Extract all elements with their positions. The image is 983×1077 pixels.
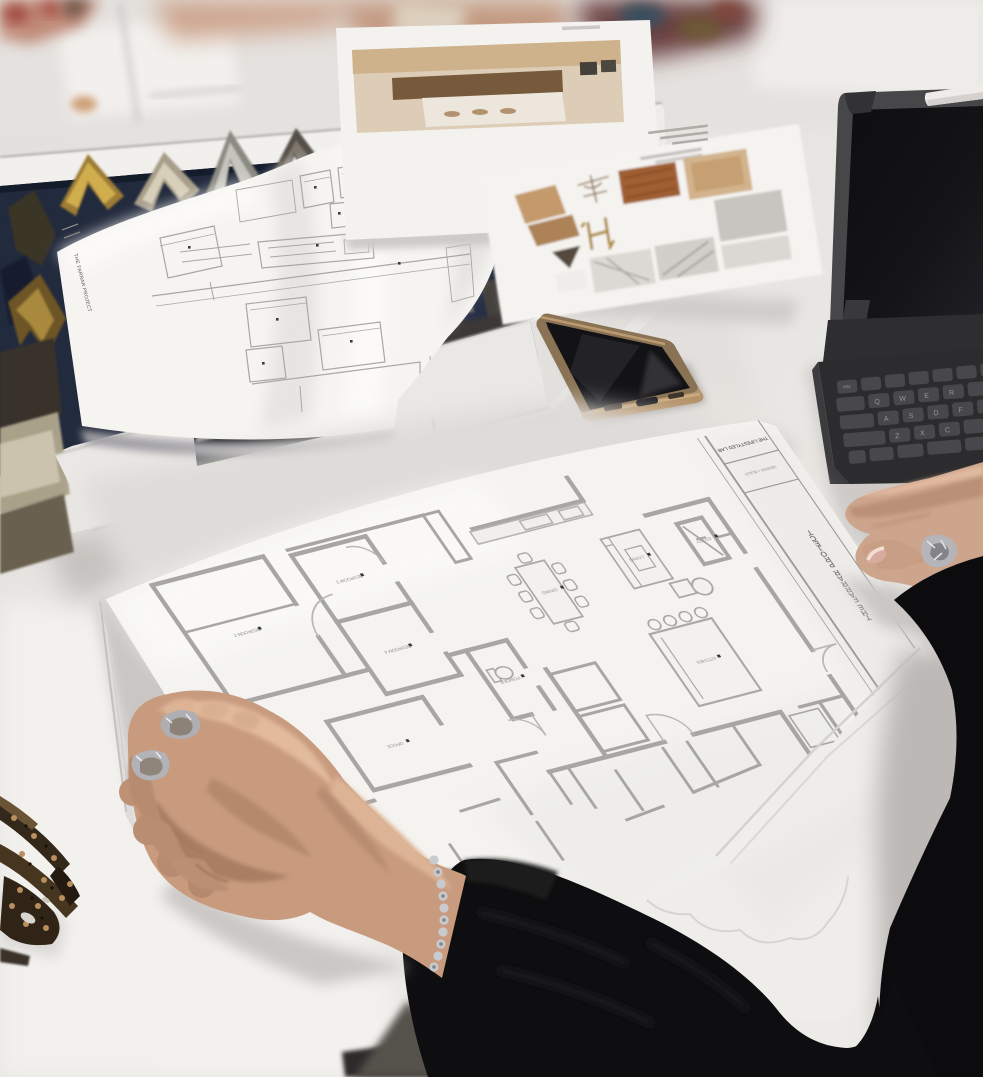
svg-text:S: S bbox=[909, 413, 915, 420]
svg-text:F: F bbox=[958, 407, 963, 414]
svg-text:esc: esc bbox=[843, 384, 852, 391]
svg-text:W: W bbox=[899, 395, 907, 403]
svg-text:A: A bbox=[884, 416, 890, 423]
svg-text:D: D bbox=[933, 410, 939, 417]
svg-text:E: E bbox=[924, 393, 930, 400]
svg-text:C: C bbox=[945, 427, 951, 434]
svg-text:R: R bbox=[949, 390, 955, 397]
svg-text:X: X bbox=[920, 430, 926, 437]
